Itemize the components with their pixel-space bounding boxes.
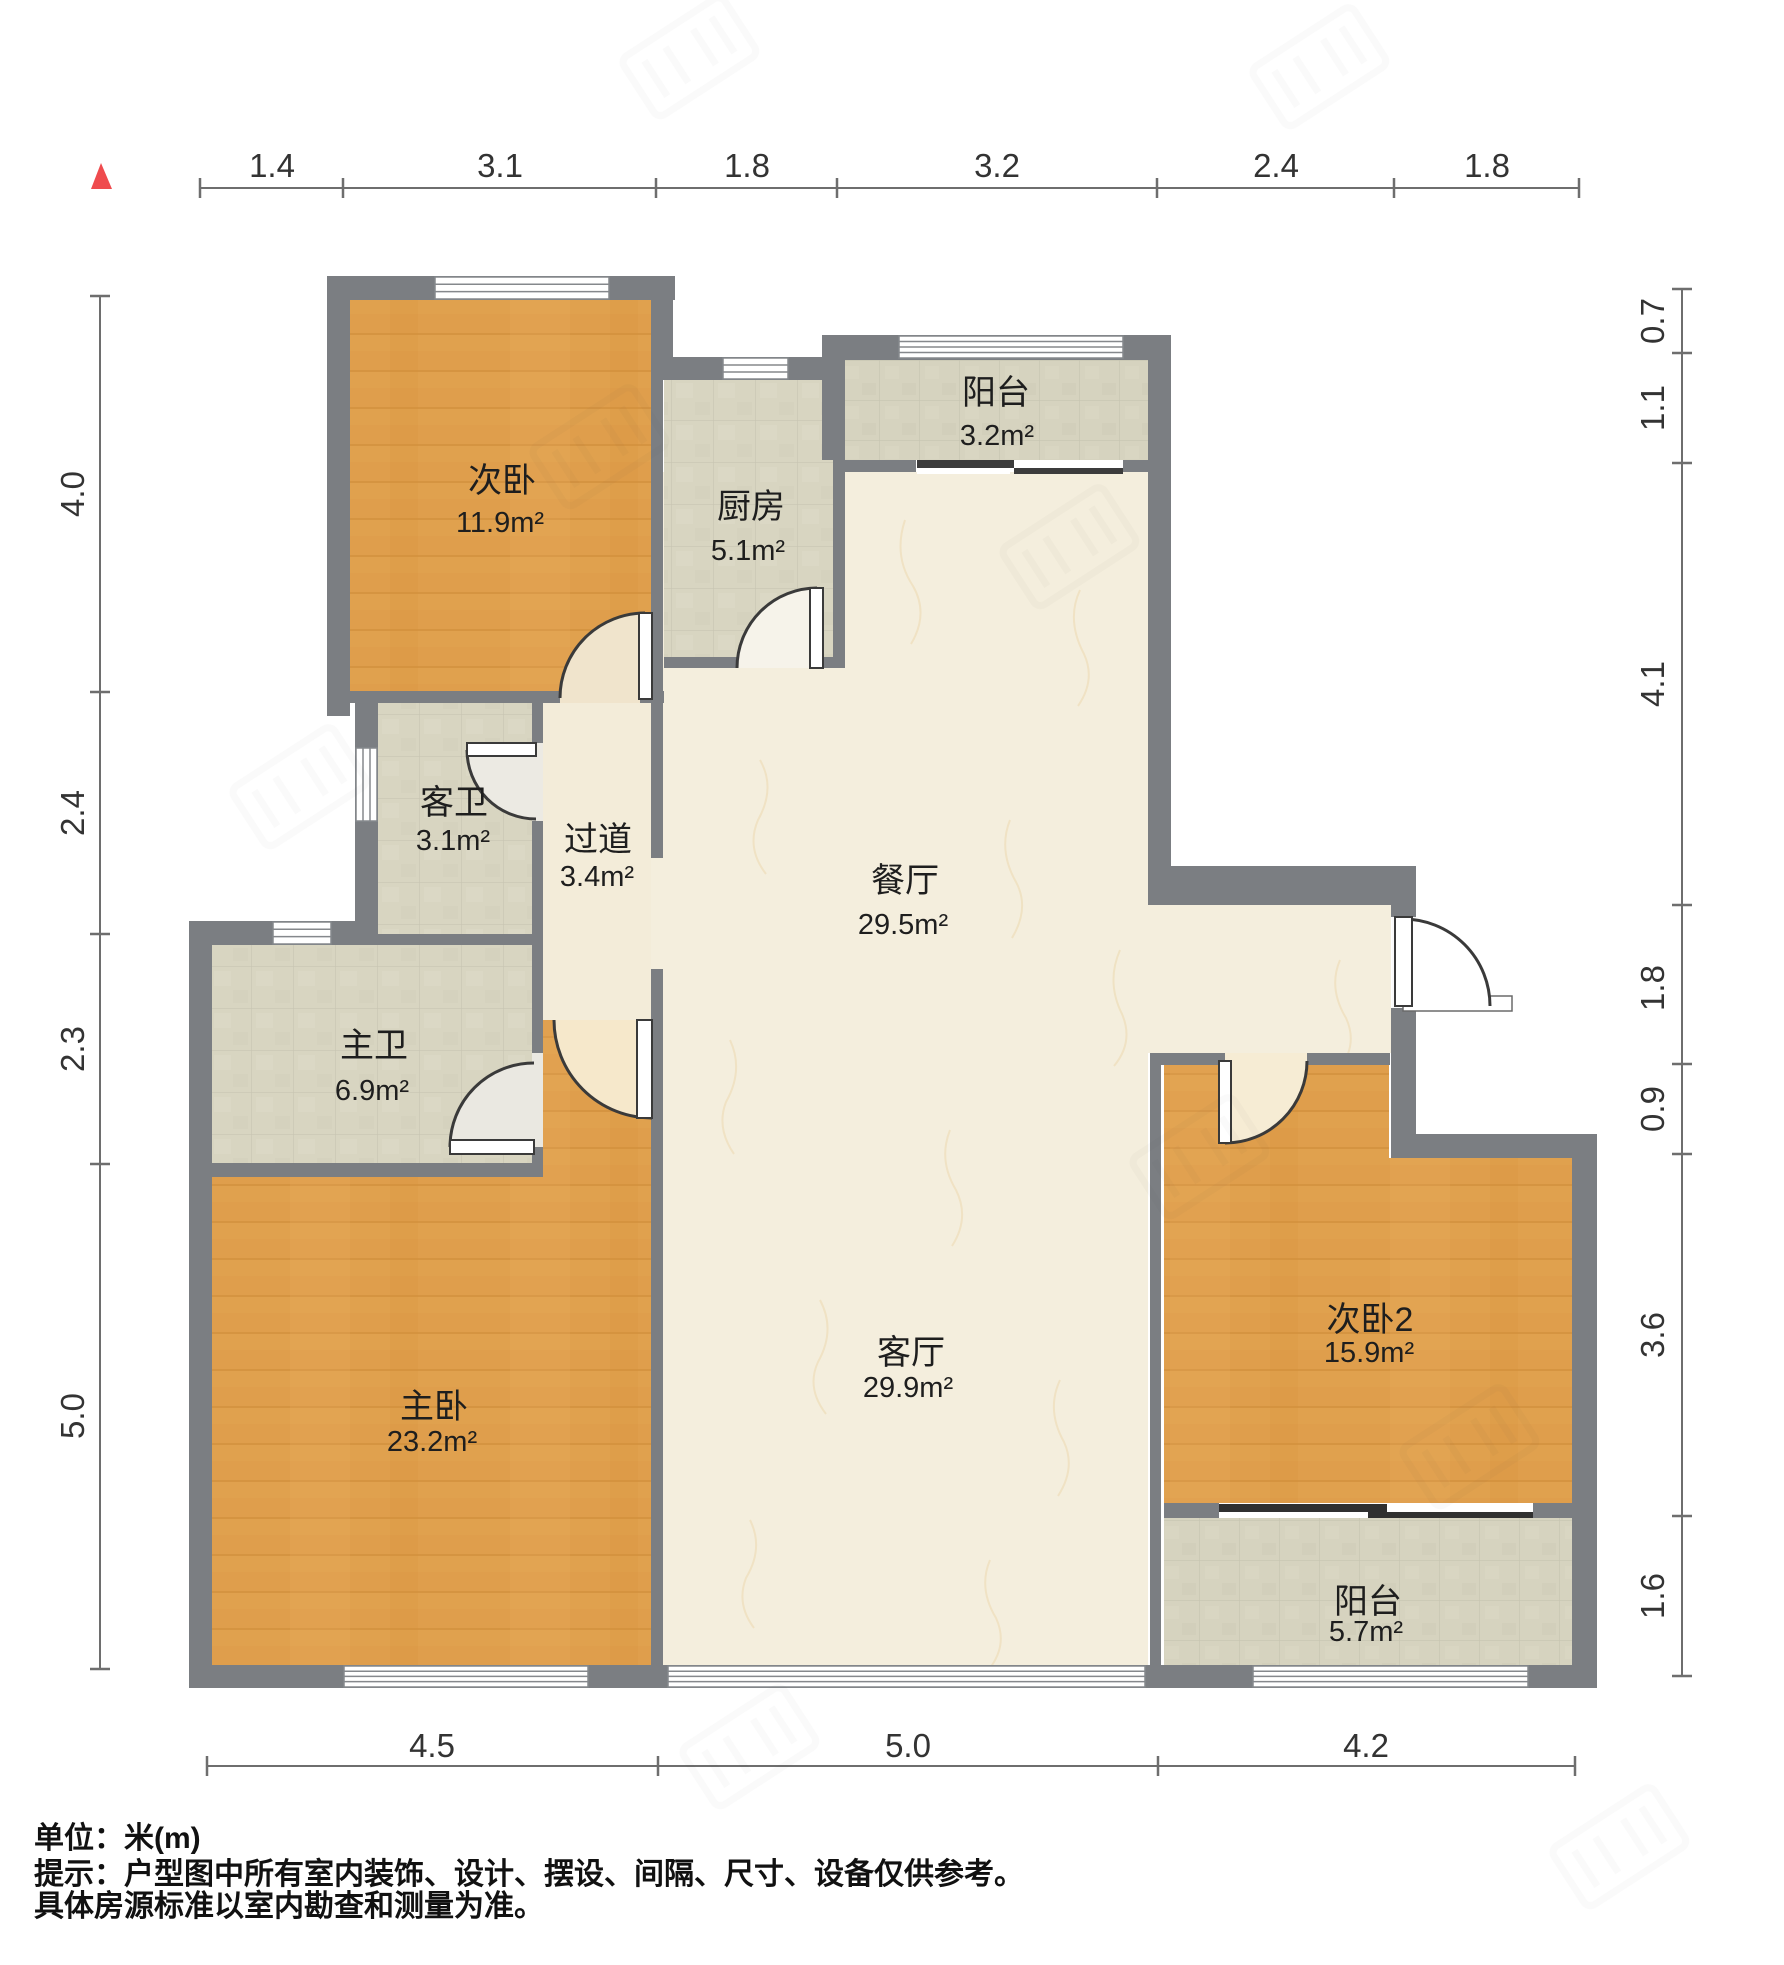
svg-text:2.4: 2.4 bbox=[54, 790, 91, 836]
svg-text:厨房: 厨房 bbox=[717, 488, 785, 526]
svg-text:具体房源标准以室内勘查和测量为准。: 具体房源标准以室内勘查和测量为准。 bbox=[34, 1889, 544, 1923]
svg-text:餐厅: 餐厅 bbox=[871, 862, 939, 900]
svg-text:2.4: 2.4 bbox=[1253, 147, 1299, 184]
svg-text:1.8: 1.8 bbox=[1464, 147, 1510, 184]
svg-text:客卫: 客卫 bbox=[420, 784, 488, 822]
svg-text:3.4m²: 3.4m² bbox=[560, 861, 634, 893]
svg-text:4.2: 4.2 bbox=[1343, 1727, 1389, 1764]
svg-text:3.2m²: 3.2m² bbox=[960, 420, 1034, 452]
svg-text:3.6: 3.6 bbox=[1634, 1312, 1671, 1358]
svg-text:11.9m²: 11.9m² bbox=[456, 507, 544, 539]
svg-text:29.9m²: 29.9m² bbox=[863, 1372, 954, 1404]
svg-text:15.9m²: 15.9m² bbox=[1324, 1337, 1415, 1369]
svg-text:5.7m²: 5.7m² bbox=[1329, 1616, 1403, 1648]
svg-text:1.6: 1.6 bbox=[1634, 1573, 1671, 1619]
svg-text:0.7: 0.7 bbox=[1634, 298, 1671, 344]
svg-text:5.1m²: 5.1m² bbox=[711, 535, 785, 567]
svg-text:提示：户型图中所有室内装饰、设计、摆设、间隔、尺寸、设备仅供: 提示：户型图中所有室内装饰、设计、摆设、间隔、尺寸、设备仅供参考。 bbox=[34, 1857, 1024, 1891]
svg-text:客厅: 客厅 bbox=[877, 1334, 945, 1372]
svg-text:1.8: 1.8 bbox=[724, 147, 770, 184]
svg-text:阳台: 阳台 bbox=[962, 374, 1030, 412]
svg-text:次卧2: 次卧2 bbox=[1327, 1301, 1414, 1339]
svg-text:3.2: 3.2 bbox=[974, 147, 1020, 184]
svg-text:5.0: 5.0 bbox=[54, 1393, 91, 1439]
svg-text:1.1: 1.1 bbox=[1634, 385, 1671, 431]
svg-text:6.9m²: 6.9m² bbox=[335, 1075, 409, 1107]
svg-text:主卫: 主卫 bbox=[340, 1027, 408, 1065]
svg-text:1.4: 1.4 bbox=[249, 147, 295, 184]
svg-text:主卧: 主卧 bbox=[400, 1388, 468, 1426]
svg-text:23.2m²: 23.2m² bbox=[387, 1426, 478, 1458]
svg-text:5.0: 5.0 bbox=[885, 1727, 931, 1764]
svg-text:2.3: 2.3 bbox=[54, 1026, 91, 1072]
svg-text:4.0: 4.0 bbox=[54, 471, 91, 517]
svg-text:过道: 过道 bbox=[564, 821, 632, 859]
svg-text:4.5: 4.5 bbox=[409, 1727, 455, 1764]
svg-text:1.8: 1.8 bbox=[1634, 965, 1671, 1011]
svg-text:29.5m²: 29.5m² bbox=[858, 909, 949, 941]
svg-text:4.1: 4.1 bbox=[1634, 661, 1671, 707]
svg-text:单位：米(m): 单位：米(m) bbox=[34, 1821, 201, 1855]
svg-text:次卧: 次卧 bbox=[468, 462, 536, 500]
svg-text:3.1: 3.1 bbox=[477, 147, 523, 184]
svg-text:0.9: 0.9 bbox=[1634, 1086, 1671, 1132]
svg-text:3.1m²: 3.1m² bbox=[416, 825, 490, 857]
